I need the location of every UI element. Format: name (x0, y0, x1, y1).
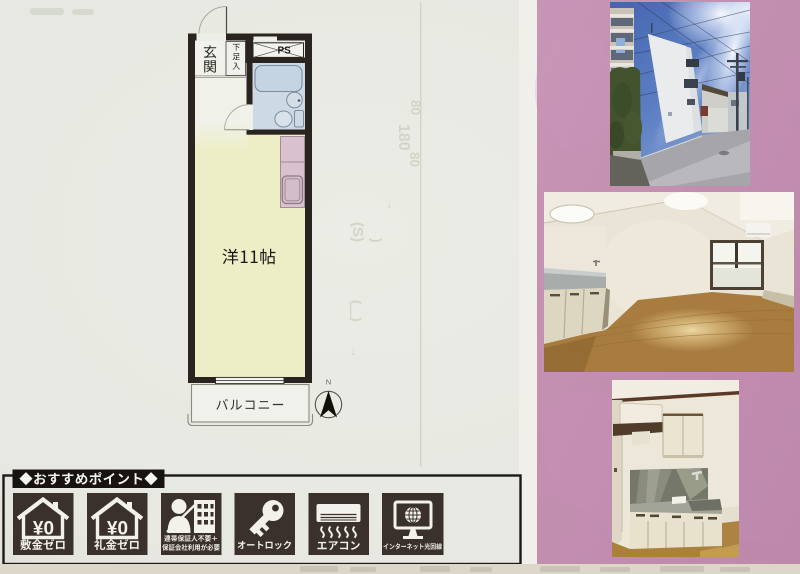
svg-text:PS: PS (278, 46, 292, 57)
svg-text:→: → (384, 198, 399, 211)
svg-text:→: → (348, 345, 363, 358)
svg-text:¥0: ¥0 (33, 519, 54, 540)
svg-text:180: 180 (395, 124, 412, 151)
svg-text:): ) (369, 238, 385, 243)
svg-text:80: 80 (407, 152, 422, 167)
svg-text:(＿): (＿) (349, 300, 364, 322)
svg-text:(S): (S) (349, 222, 366, 242)
svg-text:80: 80 (408, 100, 423, 115)
svg-text:¥0: ¥0 (107, 519, 128, 540)
svg-text:N: N (326, 378, 331, 387)
